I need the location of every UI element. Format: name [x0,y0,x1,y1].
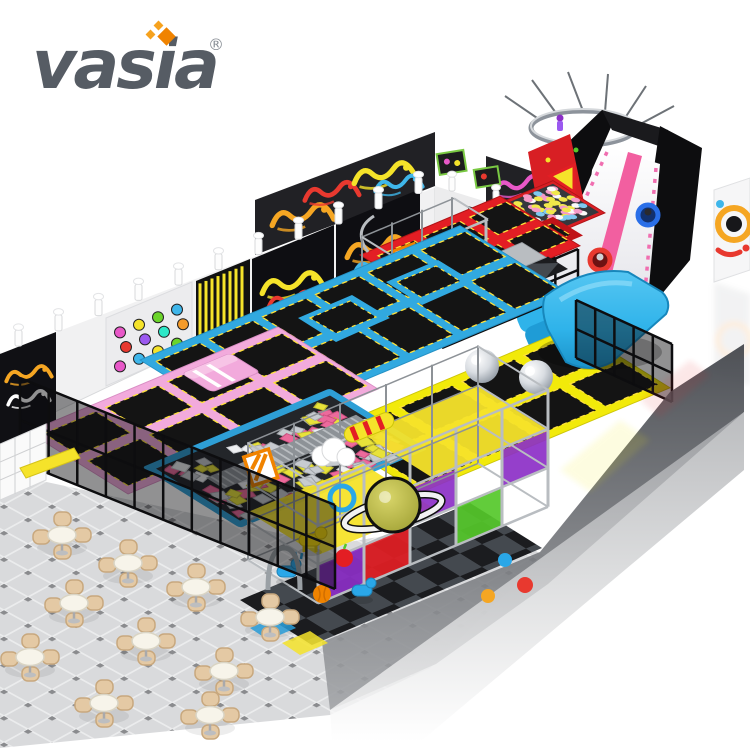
climbing-dot [115,327,126,338]
playground-render: vasia ® [0,0,750,750]
ceiling-light [14,324,24,330]
registered-mark: ® [208,35,224,54]
wall-pillar [255,239,262,255]
brand-logo: vasia ® [32,21,224,105]
ceiling-light [134,278,144,284]
ceiling-light [334,202,344,208]
ceiling-light [174,263,184,269]
wall-pillar [295,223,302,239]
wall-pillar [55,315,62,331]
ceiling-light [374,187,384,193]
climbing-dot [115,361,126,372]
wall-pillar [449,177,455,191]
climbing-dot [140,334,151,345]
donut-rider [590,250,610,270]
wall-pillar [375,193,382,209]
ball-highlight [471,355,481,365]
ceiling-light [294,217,304,223]
wall-pillar [135,284,142,300]
play-ball [517,577,533,593]
wall-pillar [215,254,222,270]
donut-rider [638,205,658,225]
climbing-dot [121,342,132,353]
play-ball [498,553,512,567]
ceiling-light [214,248,224,254]
ceiling-light [254,232,264,238]
pumpkin-toy [313,585,331,603]
climbing-dot [134,319,145,330]
climbing-dot [159,326,170,337]
ball-highlight [525,366,535,376]
wall-pillar [335,208,342,224]
climbing-dot [178,319,189,330]
wall-pillar [415,177,422,193]
climbing-dot [153,312,164,323]
climber-figure [557,115,564,132]
ceiling-light [414,171,424,177]
ceiling-light [54,309,64,315]
climbing-dot [172,304,183,315]
product-image: vasia ® [0,0,750,750]
ceiling-light [492,185,501,191]
ceiling-light [448,171,457,177]
inflatable-ball [465,349,499,383]
play-ball [481,589,495,603]
wall-pillar [175,269,182,285]
ceiling-light [94,293,104,299]
logo-wordmark: vasia [32,26,217,105]
wall-pillar [95,300,102,316]
wall-pillar [15,330,22,346]
